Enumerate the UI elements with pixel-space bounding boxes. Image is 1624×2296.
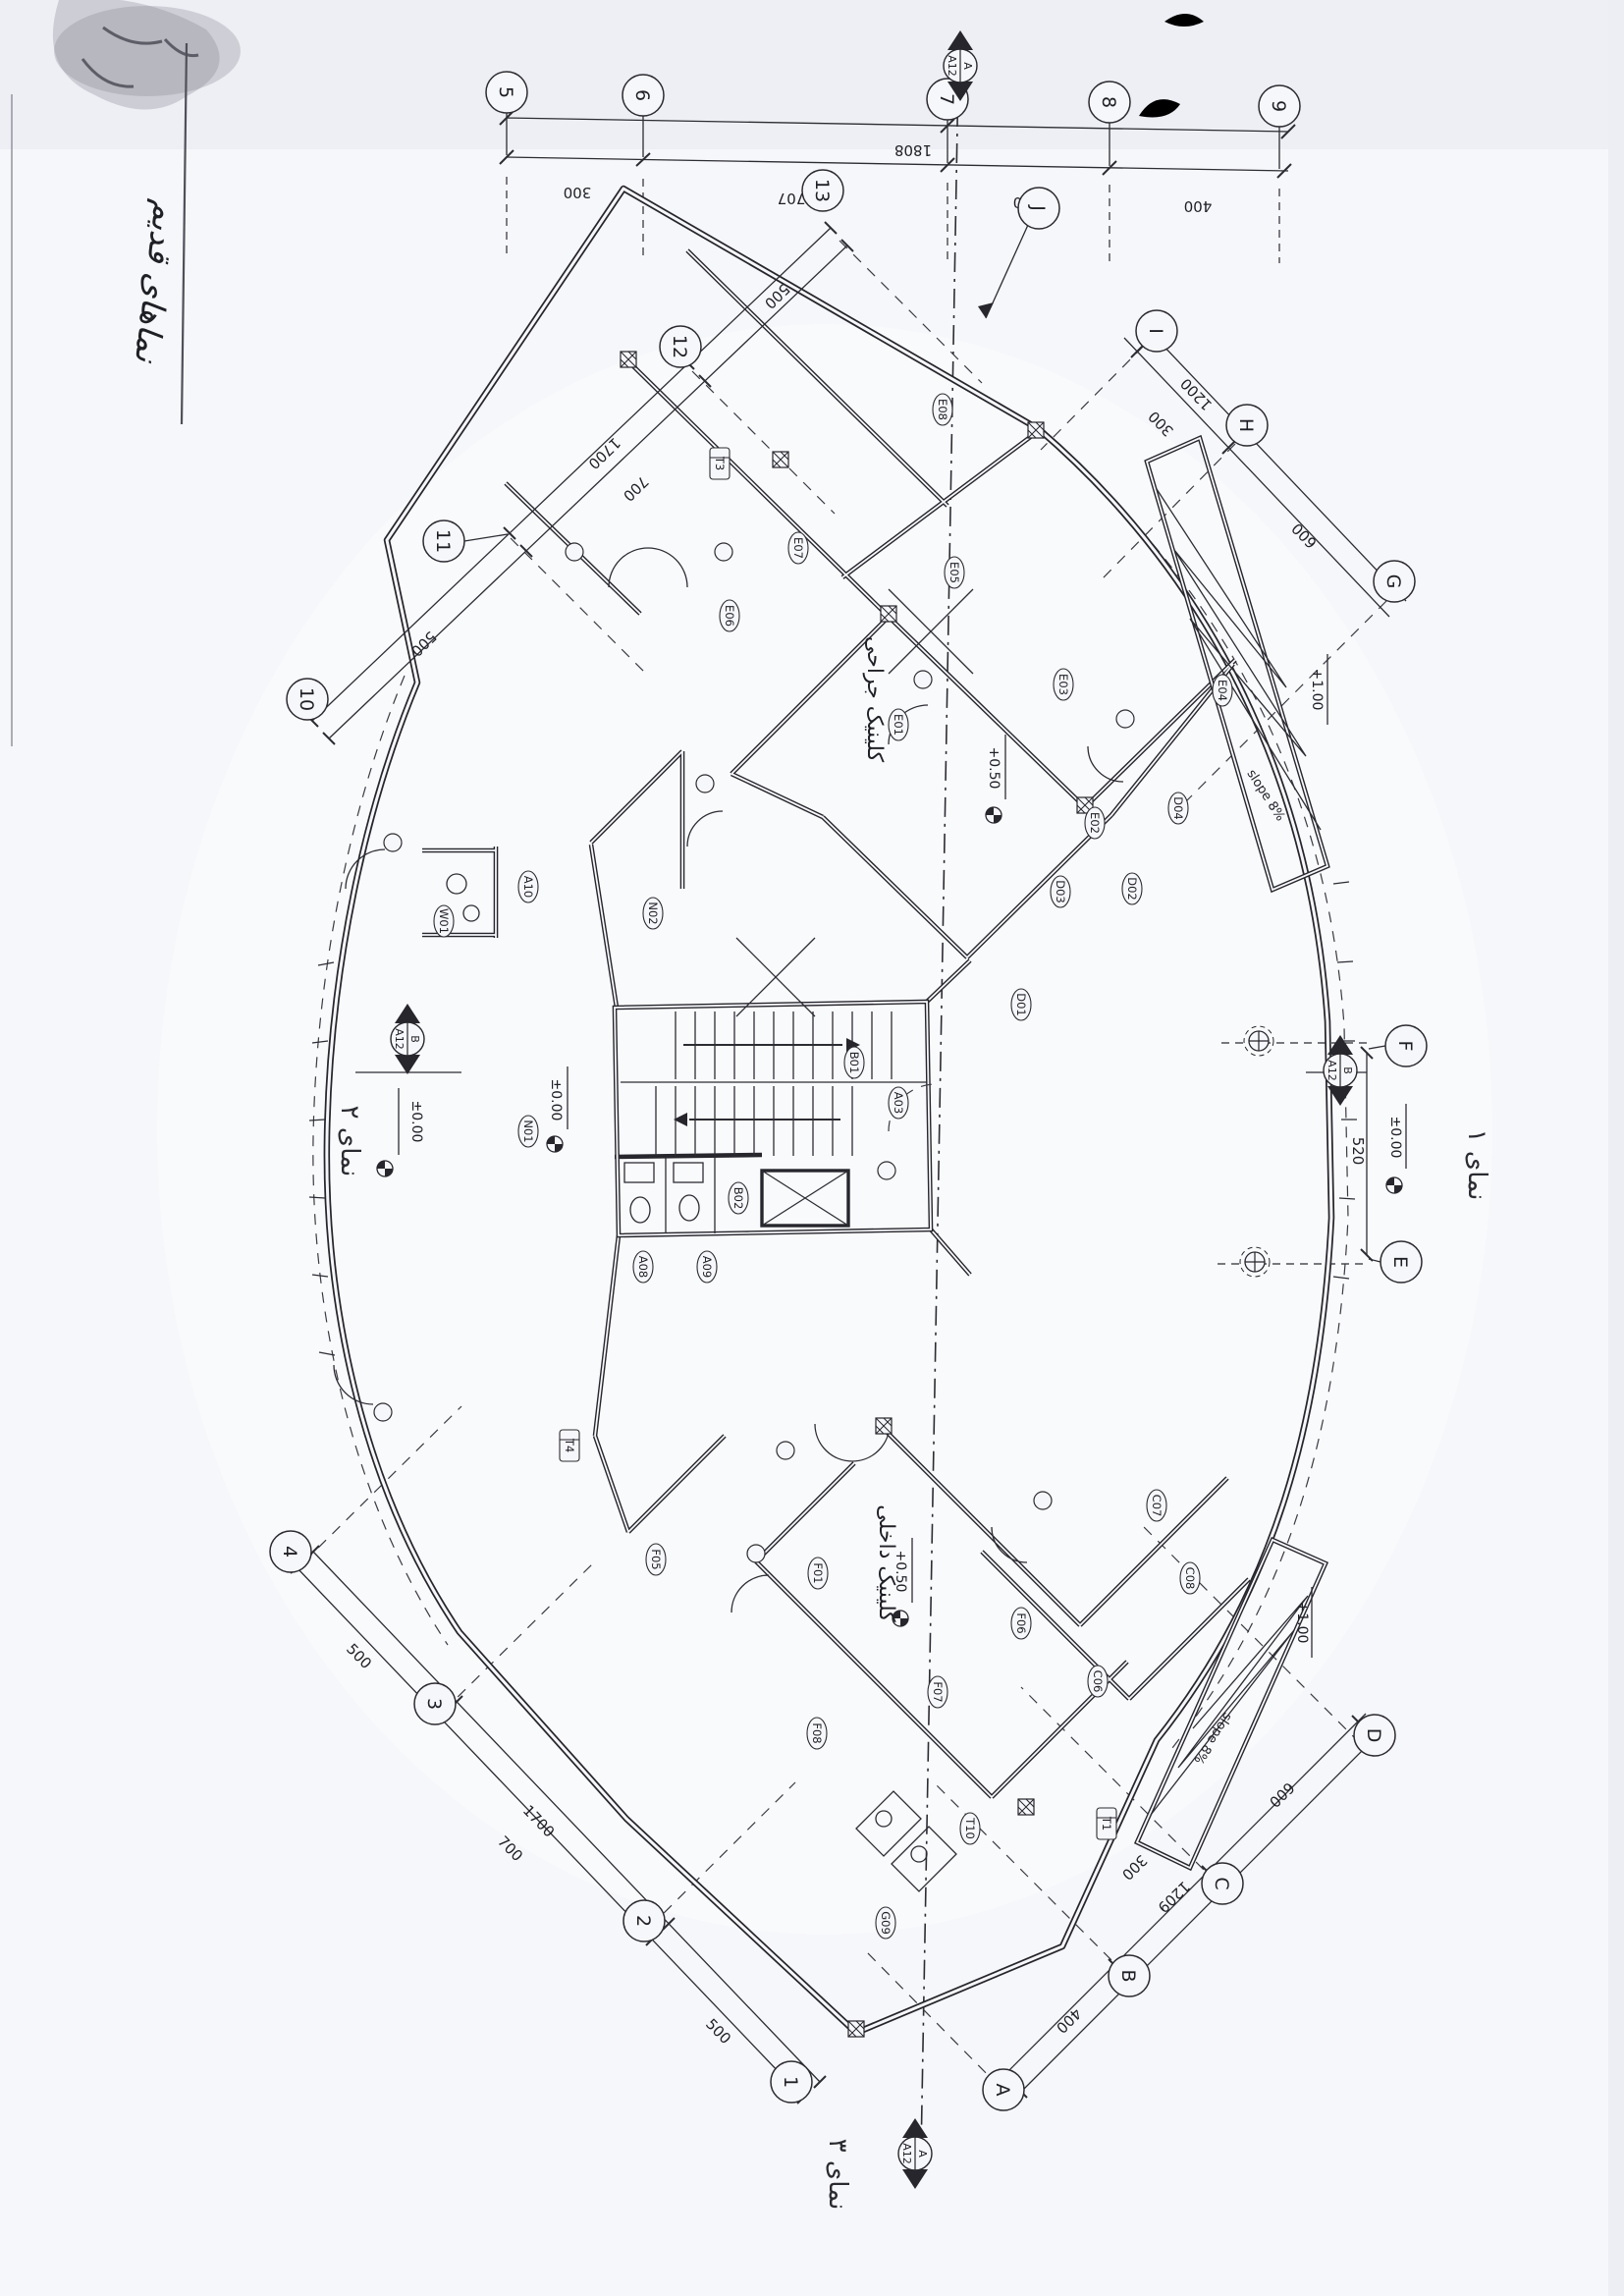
axis-bubble-a: A [983, 2069, 1024, 2110]
svg-text:کلینیک جراحی: کلینیک جراحی [862, 636, 887, 763]
svg-text:6: 6 [631, 89, 653, 101]
svg-text:I: I [1145, 328, 1166, 334]
svg-text:F01: F01 [811, 1562, 825, 1583]
column-hatch [876, 1418, 892, 1434]
axis-bubble-1: 1 [771, 2061, 812, 2103]
axis-bubble-g: G [1374, 561, 1415, 602]
svg-text:کلینیک داخلی: کلینیک داخلی [874, 1504, 898, 1622]
svg-text:A03: A03 [892, 1092, 905, 1115]
axis-bubble-8: 8 [1089, 82, 1130, 123]
svg-text:D01: D01 [1014, 993, 1028, 1016]
axis-bubble-13: 13 [802, 170, 843, 211]
axis-bubble-2: 2 [623, 1900, 665, 1941]
axis-bubble-b: B [1109, 1955, 1150, 1996]
svg-text:D04: D04 [1171, 796, 1185, 820]
svg-text:F07: F07 [931, 1681, 945, 1702]
svg-text:F: F [1394, 1041, 1416, 1052]
svg-text:E07: E07 [791, 537, 805, 559]
svg-text:A12: A12 [1326, 1060, 1338, 1081]
svg-text:A10: A10 [521, 876, 535, 899]
svg-text:10: 10 [296, 687, 317, 711]
svg-text:3: 3 [423, 1698, 445, 1710]
svg-text:D03: D03 [1054, 880, 1067, 903]
axis-bubble-i: I [1136, 310, 1177, 352]
svg-text:B02: B02 [731, 1187, 745, 1210]
axis-bubble-c: C [1202, 1863, 1243, 1904]
svg-text:H: H [1235, 418, 1257, 432]
svg-text:E05: E05 [947, 562, 961, 583]
svg-text:C07: C07 [1150, 1495, 1164, 1517]
axis-bubble-6: 6 [623, 75, 664, 116]
svg-text:A: A [961, 62, 974, 70]
svg-text:9: 9 [1268, 100, 1289, 112]
dim-top-4: 400 [1184, 197, 1213, 215]
svg-text:J: J [1027, 204, 1049, 211]
svg-text:E06: E06 [723, 605, 736, 627]
axis-bubble-e: E [1380, 1241, 1422, 1283]
svg-text:C06: C06 [1091, 1670, 1105, 1693]
scanned-floor-plan-page: نماهای قدیم [0, 0, 1624, 2296]
axis-bubble-j: J [1018, 188, 1059, 229]
axis-bubble-9: 9 [1259, 85, 1300, 127]
axis-bubble-5: 5 [486, 72, 527, 113]
room-label-surgery-clinic: کلینیک جراحی [862, 636, 887, 763]
level-zero-3: ±0.00 [1387, 1117, 1403, 1159]
svg-text:F06: F06 [1014, 1613, 1028, 1633]
level-half-1: +0.50 [986, 747, 1001, 790]
svg-text:W01: W01 [437, 908, 451, 934]
elevation-label-3: نمای ۳ [823, 2139, 852, 2211]
svg-text:E03: E03 [1056, 674, 1070, 695]
svg-text:E: E [1389, 1256, 1411, 1268]
svg-text:N01: N01 [521, 1120, 535, 1142]
level-zero-1: ±0.00 [408, 1101, 424, 1143]
svg-text:G09: G09 [879, 1911, 893, 1935]
dim-top-2: 707 [778, 190, 806, 207]
column-hatch [881, 606, 896, 622]
svg-text:F08: F08 [810, 1722, 824, 1743]
level-one-2: +1.00 [1294, 1602, 1310, 1644]
scan-band-top [0, 0, 1624, 149]
svg-text:T4: T4 [563, 1438, 576, 1452]
svg-text:13: 13 [811, 179, 833, 202]
svg-text:C08: C08 [1183, 1567, 1197, 1590]
svg-text:A09: A09 [700, 1256, 714, 1279]
svg-text:T1: T1 [1100, 1816, 1113, 1831]
svg-text:A: A [916, 2150, 929, 2158]
room-label-internal-clinic: کلینیک داخلی [874, 1504, 898, 1622]
svg-text:A: A [992, 2084, 1013, 2097]
svg-text:B: B [1117, 1969, 1139, 1982]
svg-text:5: 5 [495, 86, 516, 98]
svg-text:D02: D02 [1125, 877, 1139, 901]
axis-bubble-h: H [1226, 405, 1268, 446]
level-zero-2: ±0.00 [548, 1079, 564, 1121]
svg-text:B: B [408, 1035, 421, 1043]
floor-plan-drawing: نماهای قدیم [0, 0, 1624, 2296]
dim-top-1: 300 [564, 184, 592, 201]
svg-text:A12: A12 [900, 2143, 913, 2164]
dim-total-top: 1808 [894, 141, 932, 159]
level-one-1: +1.00 [1309, 669, 1325, 711]
svg-text:D: D [1363, 1728, 1384, 1743]
axis-bubble-11: 11 [423, 520, 464, 562]
svg-text:نمای ۲: نمای ۲ [335, 1106, 364, 1177]
svg-text:E01: E01 [892, 714, 905, 736]
svg-text:E08: E08 [936, 399, 949, 420]
axis-bubble-3: 3 [414, 1683, 456, 1724]
dim-rm-520: 520 [1349, 1137, 1367, 1166]
svg-text:2: 2 [632, 1915, 654, 1927]
svg-text:B: B [1341, 1066, 1354, 1074]
column-hatch [848, 2021, 864, 2037]
svg-text:E04: E04 [1216, 680, 1229, 701]
svg-text:A12: A12 [393, 1028, 406, 1050]
axis-bubble-10: 10 [287, 679, 328, 720]
svg-text:E02: E02 [1088, 812, 1102, 834]
svg-text:C: C [1211, 1877, 1232, 1889]
axis-bubble-4: 4 [270, 1531, 311, 1572]
svg-text:A08: A08 [636, 1256, 650, 1279]
svg-text:A12: A12 [946, 55, 958, 77]
svg-text:نمای ۳: نمای ۳ [823, 2139, 852, 2211]
axis-bubble-d: D [1354, 1715, 1395, 1756]
elevation-label-1: نمای ۱ [1462, 1129, 1491, 1201]
svg-text:B01: B01 [847, 1052, 861, 1074]
svg-text:نمای ۱: نمای ۱ [1462, 1129, 1491, 1201]
svg-text:11: 11 [432, 529, 454, 553]
scan-band-right [1608, 0, 1624, 2296]
column-hatch [621, 352, 636, 367]
svg-text:N02: N02 [646, 902, 660, 924]
svg-text:4: 4 [279, 1546, 300, 1558]
axis-bubble-f: F [1385, 1025, 1427, 1066]
column-hatch [1018, 1799, 1034, 1815]
svg-text:F05: F05 [649, 1549, 663, 1569]
svg-text:G: G [1382, 574, 1404, 589]
svg-text:T10: T10 [963, 1817, 977, 1839]
axis-bubble-12: 12 [660, 326, 701, 367]
svg-text:7: 7 [936, 93, 957, 105]
svg-text:T3: T3 [713, 456, 727, 470]
svg-text:1: 1 [780, 2076, 801, 2088]
svg-text:12: 12 [669, 335, 690, 358]
column-hatch [1028, 422, 1044, 438]
elevation-label-2: نمای ۲ [335, 1106, 364, 1177]
svg-text:8: 8 [1098, 96, 1119, 108]
column-hatch [773, 452, 788, 467]
